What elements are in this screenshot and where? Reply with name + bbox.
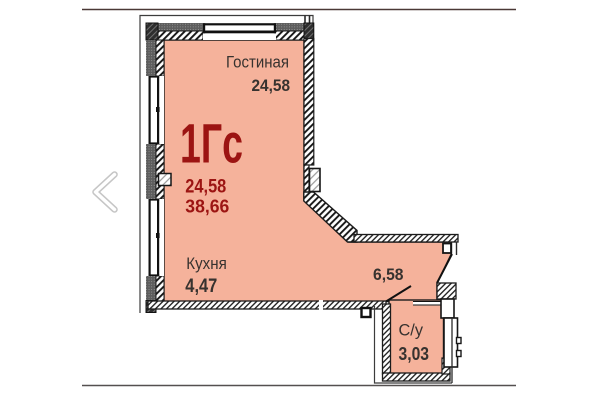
svg-text:24,58: 24,58 bbox=[252, 76, 291, 95]
svg-text:3,03: 3,03 bbox=[399, 343, 430, 364]
svg-text:С/у: С/у bbox=[399, 322, 424, 340]
svg-text:4,47: 4,47 bbox=[185, 276, 217, 297]
svg-text:Кухня: Кухня bbox=[186, 255, 227, 273]
svg-text:38,66: 38,66 bbox=[185, 197, 229, 217]
svg-text:1Гс: 1Гс bbox=[180, 113, 243, 175]
svg-text:6,58: 6,58 bbox=[373, 265, 404, 284]
svg-text:Гостиная: Гостиная bbox=[226, 53, 289, 72]
svg-text:24,58: 24,58 bbox=[185, 176, 226, 198]
